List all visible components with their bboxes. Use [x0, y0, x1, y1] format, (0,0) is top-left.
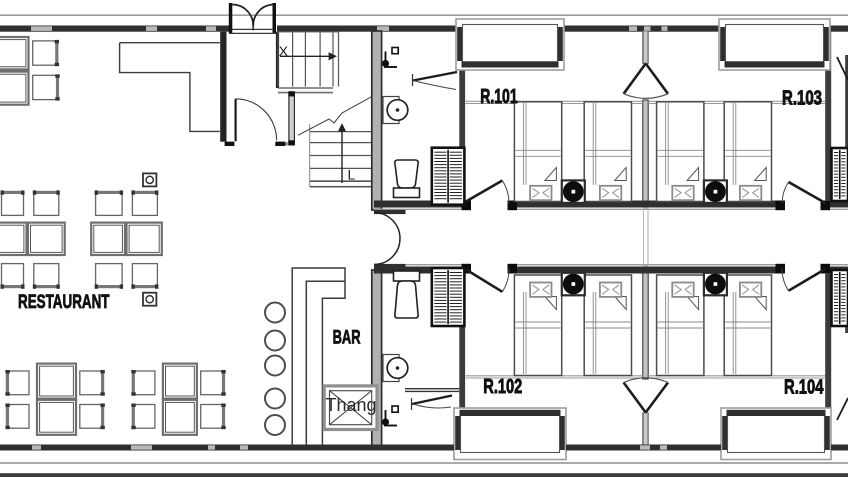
svg-text:R.104: R.104 — [784, 377, 824, 399]
svg-text:RESTAURANT: RESTAURANT — [18, 291, 110, 313]
svg-text:R.103: R.103 — [782, 88, 822, 110]
svg-text:R.101: R.101 — [480, 86, 517, 108]
svg-text:BAR: BAR — [333, 327, 361, 349]
svg-text:R.102: R.102 — [483, 376, 522, 398]
svg-text:X: X — [279, 43, 289, 59]
svg-text:L: L — [348, 166, 356, 182]
svg-text:Thang: Thang — [326, 395, 377, 415]
